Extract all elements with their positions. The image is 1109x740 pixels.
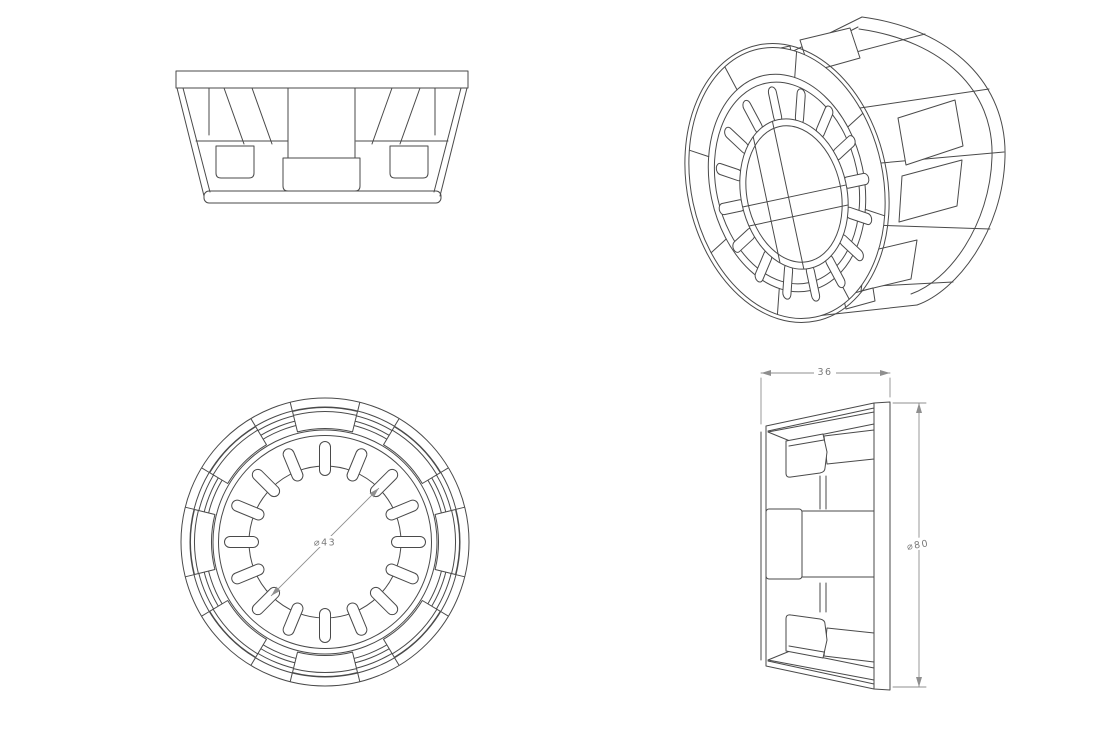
shell-cutout <box>898 100 963 165</box>
right-clip-foot <box>390 146 428 178</box>
center-boss-front-face <box>766 509 802 579</box>
right-clip-arm <box>372 88 420 144</box>
center-block <box>283 158 360 191</box>
left-clip-arm <box>224 88 272 144</box>
outer-diameter-dimension: ⌀80 <box>893 403 936 687</box>
side-view: 36 ⌀80 <box>761 366 936 690</box>
center-boss-side-face <box>801 511 874 577</box>
flange-band <box>176 71 468 88</box>
shell-cutout <box>899 160 962 222</box>
cad-drawing-canvas: ⌀43 36 ⌀80 <box>0 0 1109 740</box>
top-view <box>176 71 468 203</box>
center-post-walls <box>288 88 355 158</box>
top-clip-strip <box>824 430 874 464</box>
bottom-rim <box>204 191 441 203</box>
bore-diameter-label: ⌀43 <box>314 538 336 549</box>
bottom-clip-strip <box>824 628 874 662</box>
front-view: ⌀43 <box>181 398 469 686</box>
width-dimension-label: 36 <box>817 367 832 378</box>
isometric-view <box>660 17 1005 342</box>
left-clip-foot <box>216 146 254 178</box>
